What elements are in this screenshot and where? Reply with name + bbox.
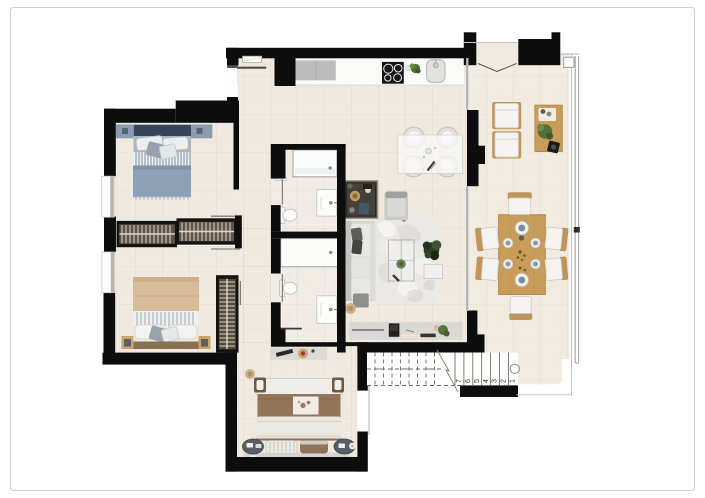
- svg-text:4: 4: [483, 379, 490, 383]
- svg-text:6: 6: [465, 379, 472, 383]
- svg-text:3: 3: [492, 379, 499, 383]
- svg-text:2: 2: [501, 379, 508, 383]
- svg-text:7: 7: [456, 379, 463, 383]
- svg-text:5: 5: [474, 379, 481, 383]
- svg-text:1: 1: [510, 379, 517, 383]
